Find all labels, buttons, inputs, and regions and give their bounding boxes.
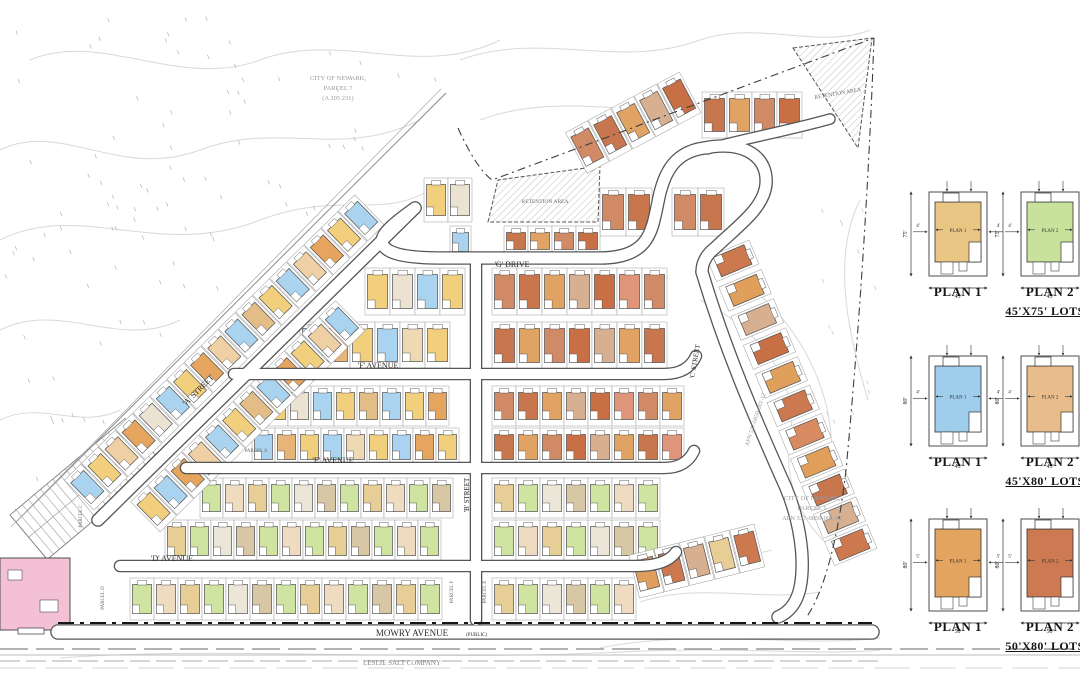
lot-row: [200, 478, 453, 518]
legend-plan2-caption: PLAN 2: [1005, 284, 1080, 300]
lot-row: [672, 188, 724, 236]
street-label-b-street: 'B' STREET: [463, 477, 471, 512]
legend-plan-inner-label: PLAN 2: [1042, 559, 1059, 564]
legend-side-setback-dim: 5': [916, 554, 920, 559]
annotation-city-parcel-7: PARCEL 7: [324, 85, 354, 92]
site-plan-drawing: RETENTION AREARETENTION AREA'G' DRIVE'F'…: [0, 0, 1080, 675]
parcel-label: PARCEL D: [101, 586, 106, 610]
legend-plan-inner-label: PLAN 1: [950, 559, 967, 564]
street-label-g-drive: 'G' DRIVE: [494, 260, 529, 269]
street-label-mowry-suffix: (PUBLIC): [466, 633, 487, 638]
legend-depth-dim: 75': [995, 230, 1001, 237]
legend-plan-inner-label: PLAN 1: [950, 229, 967, 234]
legend-plan-diagram: PLAN 280'50'5'5': [995, 508, 1080, 635]
lot-row: [492, 322, 667, 369]
street-label-f-avenue: 'F' AVENUE: [358, 361, 399, 370]
parcel-label: PARCEL E: [483, 581, 488, 604]
legend-plan-diagram: PLAN 275'45'4'4': [995, 181, 1080, 300]
legend-side-setback-dim: 4': [997, 391, 1001, 396]
lot-row: [252, 428, 459, 466]
retention-area: RETENTION AREA: [488, 166, 600, 222]
legend-plan2-caption: PLAN 2: [1005, 454, 1080, 470]
lot-row: [492, 578, 636, 620]
street-label-e-avenue: 'E' AVENUE: [312, 456, 353, 465]
legend-side-setback-dim: 4': [916, 391, 920, 396]
legend-plan-inner-label: PLAN 1: [950, 396, 967, 401]
legend-plan-inner-label: PLAN 2: [1042, 229, 1059, 234]
legend-plan-diagram: PLAN 180'45'4'4': [903, 345, 1003, 470]
legend-depth-dim: 80': [995, 397, 1001, 404]
legend-plan-inner-label: PLAN 2: [1042, 396, 1059, 401]
legend-plan-diagram: PLAN 175'45'4'4': [903, 181, 1003, 300]
lot-row: [165, 520, 441, 562]
legend-diagrams: PLAN 175'45'4'4'PLAN 275'45'4'4'PLAN 180…: [903, 181, 1080, 635]
annotation-city-parcel-1: CITY OF NEWARK,: [784, 495, 840, 502]
legend-plan2-caption: PLAN 2: [1005, 619, 1080, 635]
annotation-city-parcel-1: APN 537-0850-001-02: [782, 515, 842, 522]
legend-lot-type-45x80: 45'X80' LOTS: [990, 474, 1080, 489]
legend-side-setback-dim: 4': [997, 224, 1001, 229]
legend-depth-dim: 80': [903, 397, 909, 404]
site-plan-sheet: RETENTION AREARETENTION AREA'G' DRIVE'F'…: [0, 0, 1080, 675]
lot-row: [492, 386, 684, 426]
legend-side-setback-dim: 5': [1008, 554, 1012, 559]
lot-row: [492, 428, 684, 466]
parcel-label: PARCEL A: [244, 449, 267, 454]
lot-row: [424, 178, 472, 222]
legend-depth-dim: 80': [995, 561, 1001, 568]
legend-side-setback-dim: 4': [1008, 391, 1012, 396]
lot-row: [365, 268, 465, 315]
legend-side-setback-dim: 4': [1008, 224, 1012, 229]
parcel-label: PARCEL F: [450, 581, 455, 604]
annotation-city-parcel-7: (A 205 231): [322, 95, 353, 102]
legend-plan-diagram: PLAN 280'45'4'4': [995, 345, 1080, 470]
street-label-mowry-avenue: MOWRY AVENUE: [376, 628, 449, 638]
legend-plan1-caption: PLAN 1: [913, 619, 1003, 635]
legend-lot-type-50x80: 50'X80' LOTS: [990, 639, 1080, 654]
legend-side-setback-dim: 5': [997, 554, 1001, 559]
annotation-salt-company: LESLIE SALT COMPANY: [363, 659, 441, 667]
retention-area-label: RETENTION AREA: [522, 199, 569, 205]
legend-plan-diagram: PLAN 180'50'5'5': [903, 508, 1003, 635]
lot-row: [492, 268, 667, 315]
annotation-city-parcel-1: PARCEL 1: [798, 505, 827, 512]
parcel-label: PARCEL C: [79, 504, 84, 528]
legend-depth-dim: 80': [903, 561, 909, 568]
legend-plan1-caption: PLAN 1: [913, 284, 1003, 300]
legend-side-setback-dim: 4': [916, 224, 920, 229]
annotation-city-parcel-7: CITY OF NEWARK,: [310, 75, 366, 82]
legend-plan1-caption: PLAN 1: [913, 454, 1003, 470]
legend-depth-dim: 75': [903, 230, 909, 237]
lot-row: [130, 578, 442, 620]
street-label-d-avenue: 'D' AVENUE: [151, 554, 193, 563]
legend-lot-type-45x75: 45'X75' LOTS: [990, 304, 1080, 319]
lot-row: [492, 478, 660, 518]
